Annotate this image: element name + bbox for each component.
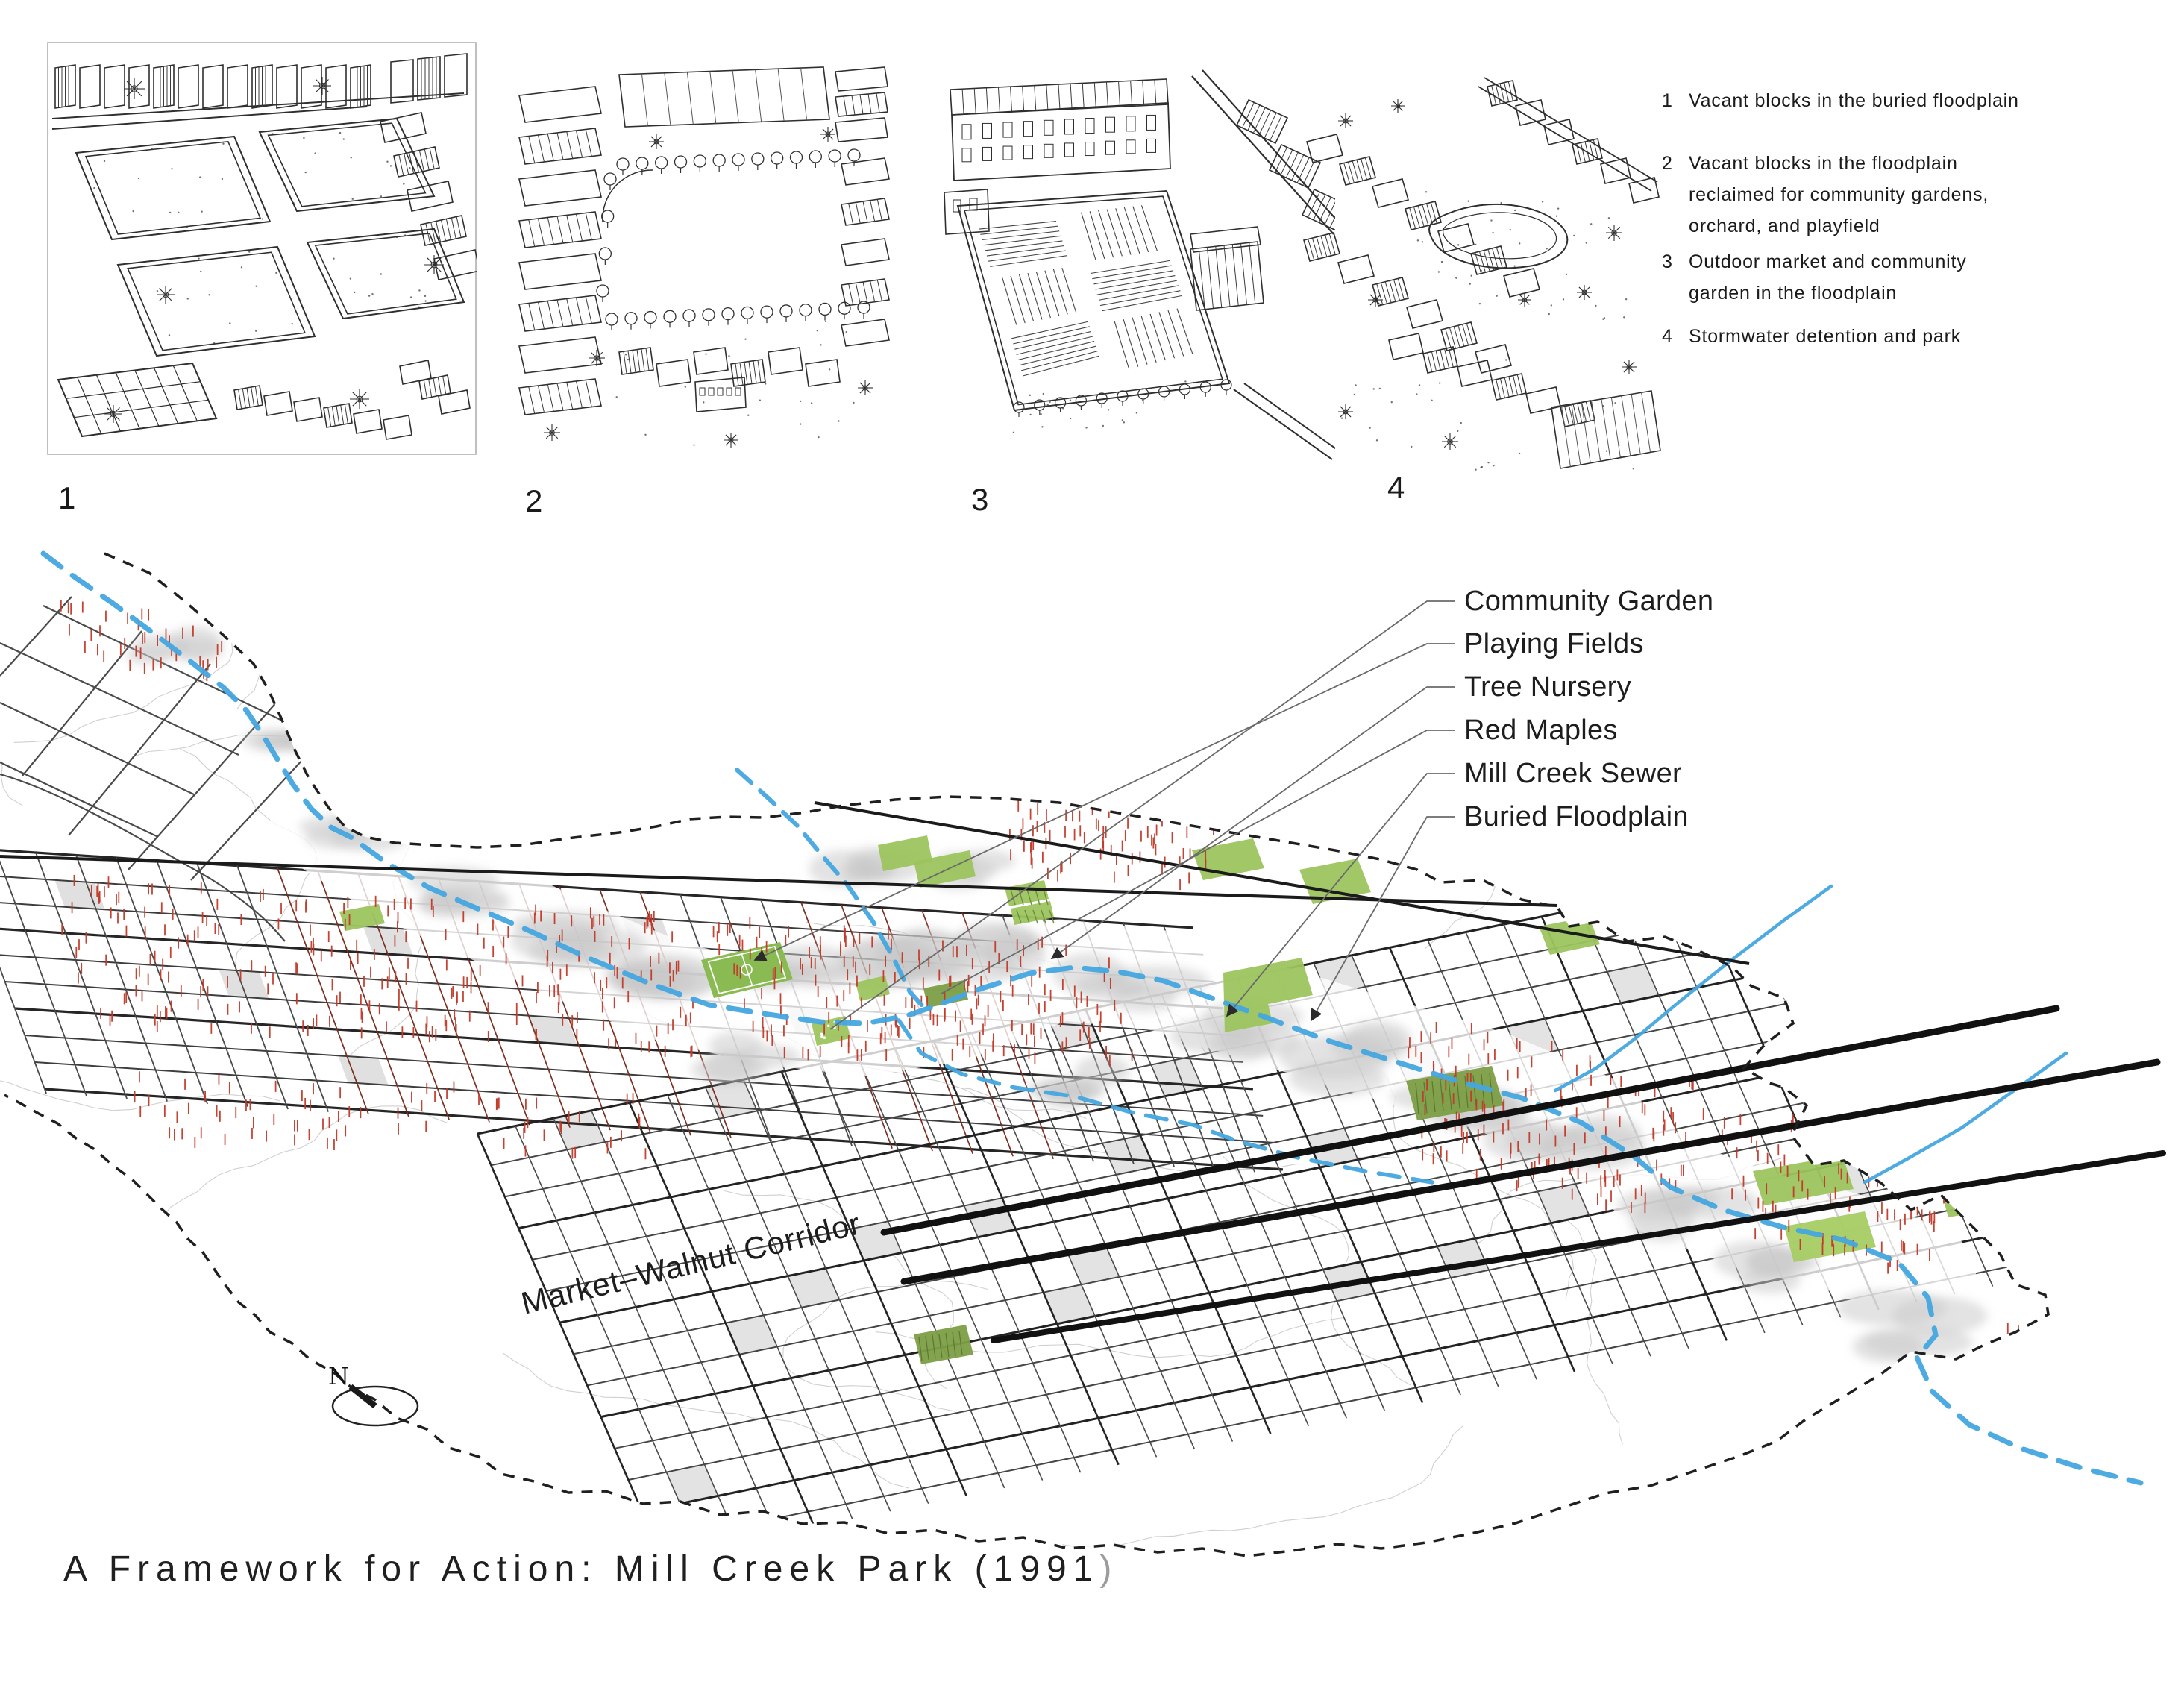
compass-north-label: N: [328, 1362, 349, 1390]
map-label-tree-nursery: Tree Nursery: [1464, 671, 1631, 703]
compass: N: [328, 1362, 418, 1425]
map-label-mill-creek-sewer: Mill Creek Sewer: [1464, 758, 1682, 790]
watershed-boundary: [4, 553, 2048, 1556]
page-title: A Framework for Action: Mill Creek Park …: [63, 1549, 1118, 1590]
lower-right-grid: [477, 788, 2184, 1558]
page-title-paren: ): [1099, 1549, 1118, 1589]
map-label-buried-floodplain: Buried Floodplain: [1464, 801, 1689, 833]
compass-needle: [351, 1387, 375, 1406]
map-label-playing-fields: Playing Fields: [1464, 628, 1644, 660]
document-sheet: 1 2 3 4 1 Vacant blocks in the buried fl…: [0, 0, 2184, 1688]
page-title-main: A Framework for Action: Mill Creek Park …: [63, 1549, 1099, 1589]
map-clipped-layers: [0, 474, 2184, 1558]
red-maple-ticks: [61, 600, 2133, 1460]
map-label-community-garden: Community Garden: [1464, 586, 1713, 618]
mill-creek-watershed-map: N Market–Walnut Corridor: [0, 0, 2184, 1688]
map-label-red-maples: Red Maples: [1464, 715, 1618, 747]
